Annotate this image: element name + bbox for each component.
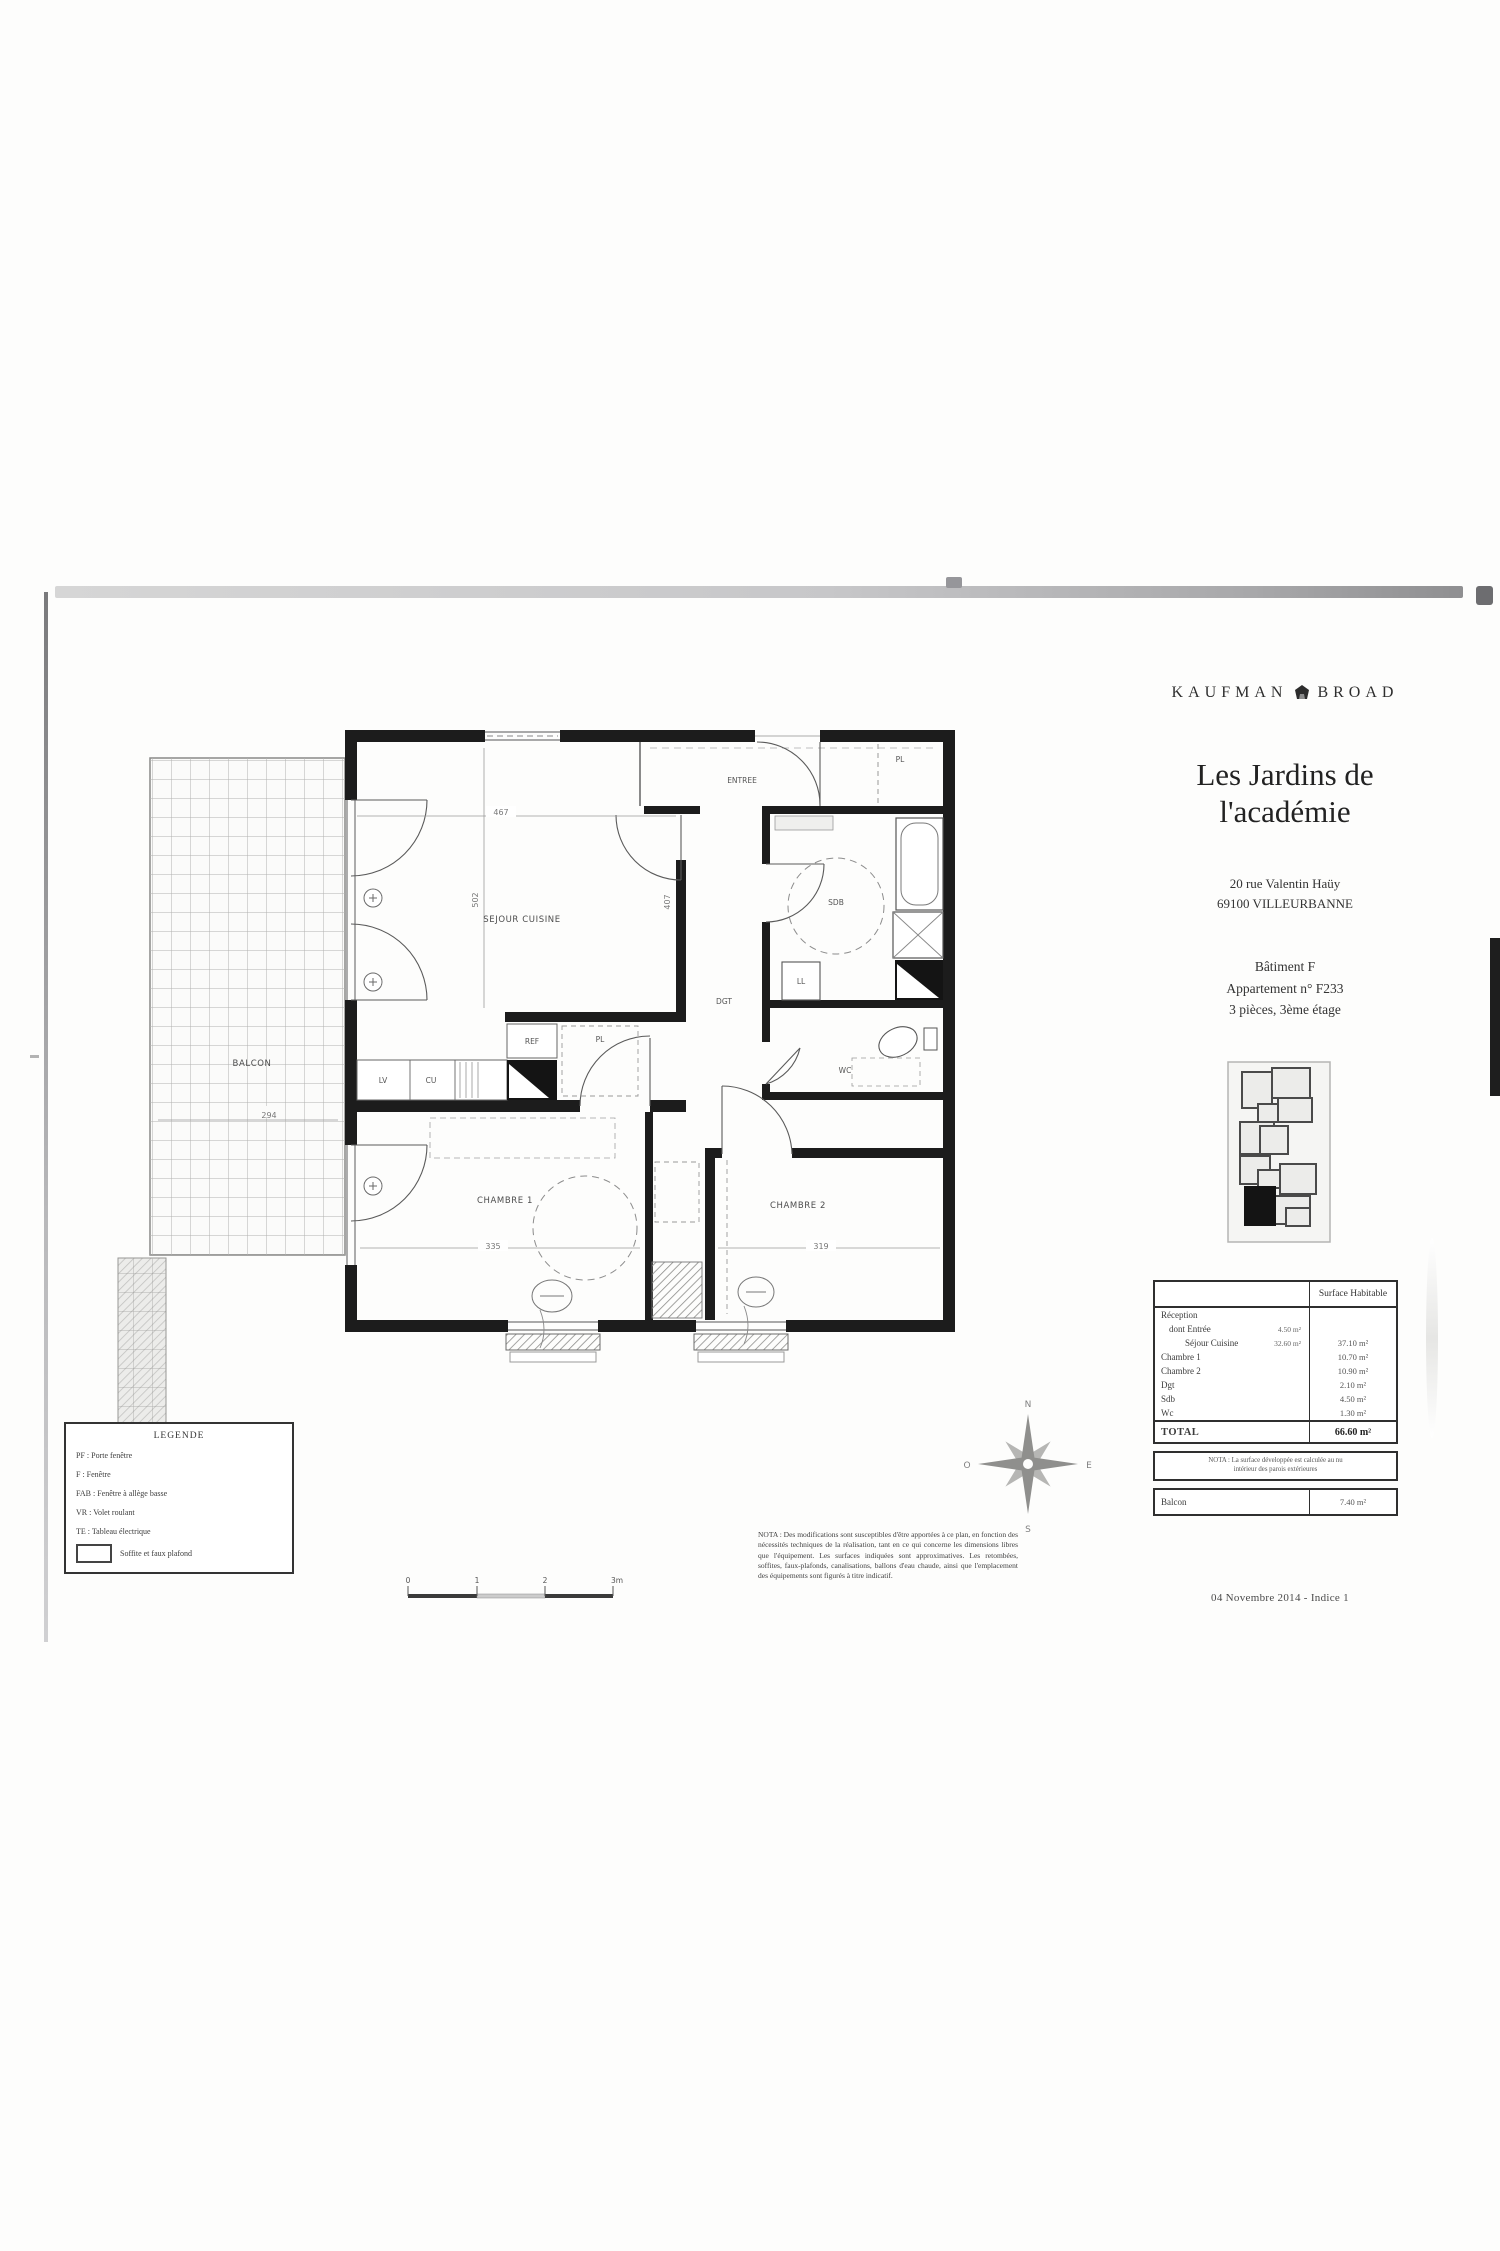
project-address: 20 rue Valentin Haüy 69100 VILLEURBANNE [1100, 874, 1470, 914]
legend-item-soffite: Soffite et faux plafond [76, 1544, 282, 1563]
legend-item: PF : Porte fenêtre [76, 1451, 282, 1460]
plan-date: 04 Novembre 2014 - Indice 1 [1140, 1592, 1420, 1604]
doors [351, 742, 824, 1221]
room-label-dgt: DGT [716, 997, 732, 1006]
nota-text: NOTA : Des modifications sont susceptibl… [758, 1530, 1018, 1582]
table-row: Séjour Cuisine 32.60 m² 37.10 m² [1155, 1336, 1396, 1350]
project-title-line2: l'académie [1100, 793, 1470, 830]
building-label: Bâtiment F [1100, 956, 1470, 978]
apartment-details: 3 pièces, 3ème étage [1100, 999, 1470, 1021]
windows [347, 732, 820, 1330]
brand-broad: BROAD [1317, 684, 1398, 701]
balcony-label: BALCON [233, 1059, 272, 1069]
scale-tick-2: 2 [543, 1576, 548, 1585]
fixture-label-lv: LV [379, 1076, 388, 1085]
address-line2: 69100 VILLEURBANNE [1100, 894, 1470, 914]
fixture-label-ref: REF [525, 1037, 539, 1046]
compass-west-label: O [963, 1461, 970, 1471]
turning-circle [533, 1176, 637, 1280]
table-row: Dgt 2.10 m² [1155, 1378, 1396, 1392]
brand-header: KAUFMANBROAD [1100, 684, 1470, 702]
room-label-sejour: SEJOUR CUISINE [483, 915, 561, 925]
scale-bar: 0 1 2 3m [406, 1576, 623, 1598]
soffite-symbol-icon [76, 1544, 112, 1563]
balcony-row: Balcon 7.40 m² [1153, 1488, 1398, 1516]
project-title: Les Jardins de l'académie [1100, 756, 1470, 830]
compass-south-label: S [1025, 1525, 1031, 1535]
table-row: Réception [1155, 1308, 1396, 1322]
room-label-entree: ENTREE [727, 776, 757, 785]
table-header-row: Surface Habitable [1155, 1282, 1396, 1308]
dim-sejour-width: 467 [493, 808, 508, 817]
table-row: dont Entrée 4.50 m² [1155, 1322, 1396, 1336]
table-row: Chambre 1 10.70 m² [1155, 1350, 1396, 1364]
current-unit-marker [1244, 1186, 1276, 1226]
dim-sejour-height: 502 [471, 892, 480, 907]
table-total-row: TOTAL 66.60 m² [1155, 1420, 1396, 1442]
apartment-info: Bâtiment F Appartement n° F233 3 pièces,… [1100, 956, 1470, 1021]
bathroom-fixtures [775, 816, 943, 1086]
dim-chambre1-width: 335 [485, 1242, 500, 1251]
legend-item: F : Fenêtre [76, 1470, 282, 1479]
bathtub [896, 818, 943, 910]
legend-title: LEGENDE [76, 1431, 282, 1441]
fixture-label-cu: CU [426, 1076, 437, 1085]
room-label-chambre2: CHAMBRE 2 [770, 1201, 826, 1211]
legend-item: TE : Tableau électrique [76, 1527, 282, 1536]
table-header-surface: Surface Habitable [1309, 1282, 1396, 1306]
scale-tick-3m: 3m [611, 1576, 623, 1585]
room-label-chambre1: CHAMBRE 1 [477, 1196, 533, 1206]
apartment-number: Appartement n° F233 [1100, 978, 1470, 1000]
compass-rose: N S E O [963, 1400, 1092, 1535]
locator-map [1226, 1060, 1332, 1244]
scale-tick-0: 0 [406, 1576, 411, 1585]
table-row: Chambre 2 10.90 m² [1155, 1364, 1396, 1378]
kaufman-broad-logo-icon [1294, 685, 1310, 699]
toilet [874, 1021, 922, 1063]
brand-kaufman: KAUFMAN [1172, 684, 1288, 701]
scale-tick-1: 1 [475, 1576, 480, 1585]
fixture-label-ll: LL [797, 977, 806, 986]
fixture-label-pl2: PL [896, 755, 906, 764]
dim-chambre2-width: 319 [813, 1242, 828, 1251]
fixture-label-pl: PL [596, 1035, 606, 1044]
dim-hall-height: 407 [663, 894, 672, 909]
balcony-dimension: 294 [261, 1111, 276, 1120]
table-row: Sdb 4.50 m² [1155, 1392, 1396, 1406]
room-label-wc: WC [839, 1066, 852, 1075]
compass-north-label: N [1025, 1400, 1032, 1410]
compass-east-label: E [1086, 1461, 1092, 1471]
table-note: NOTA : La surface développée est calculé… [1153, 1451, 1398, 1481]
legend-item: FAB : Fenêtre à allège basse [76, 1489, 282, 1498]
surface-table-main: Surface Habitable Réception dont Entrée … [1153, 1280, 1398, 1444]
legend-item: VR : Volet roulant [76, 1508, 282, 1517]
project-title-line1: Les Jardins de [1100, 756, 1470, 793]
window-handle-icons [364, 889, 382, 1195]
address-line1: 20 rue Valentin Haüy [1100, 874, 1470, 894]
legend-box: LEGENDE PF : Porte fenêtre F : Fenêtre F… [64, 1422, 294, 1574]
room-label-sdb: SDB [828, 898, 844, 907]
balcony: BALCON 294 [118, 758, 345, 1490]
surface-table: Surface Habitable Réception dont Entrée … [1153, 1280, 1398, 1516]
table-row: Wc 1.30 m² [1155, 1406, 1396, 1420]
